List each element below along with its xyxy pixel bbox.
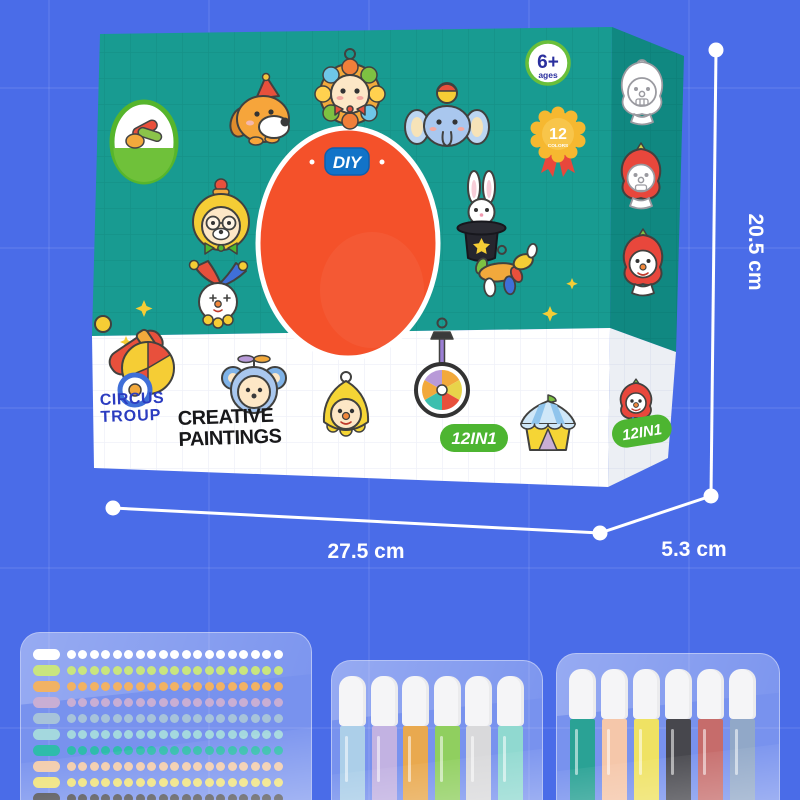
bead: [147, 666, 156, 675]
bead: [262, 778, 271, 787]
bead: [216, 762, 225, 771]
bead: [262, 730, 271, 739]
bead: [205, 666, 214, 675]
bead: [90, 682, 99, 691]
bead: [78, 778, 87, 787]
diy-dot-left: [310, 160, 315, 165]
bead: [147, 682, 156, 691]
bead: [193, 778, 202, 787]
pen-body: [698, 719, 723, 800]
paint-pen: [339, 676, 366, 800]
bead: [228, 730, 237, 739]
product-title: CREATIVE PAINTINGS: [177, 404, 282, 451]
bead: [205, 794, 214, 800]
bead: [251, 762, 260, 771]
dimension-endpoint: [106, 501, 121, 516]
bead: [170, 730, 179, 739]
pen-body: [570, 719, 595, 800]
bead-connector: [33, 697, 60, 708]
bead: [67, 698, 76, 707]
bead: [90, 778, 99, 787]
bead: [136, 666, 145, 675]
bead-strip-rows: [33, 649, 283, 800]
pen-body: [403, 726, 428, 800]
bead: [239, 682, 248, 691]
bead: [193, 698, 202, 707]
bead: [274, 746, 283, 755]
bead: [228, 650, 237, 659]
bead: [101, 746, 110, 755]
paint-pen: [729, 669, 756, 800]
bead: [113, 762, 122, 771]
paint-pen: [497, 676, 524, 800]
bead-connector: [33, 713, 60, 724]
bead: [262, 666, 271, 675]
bead: [262, 746, 271, 755]
pen-cap: [339, 676, 366, 726]
bead: [216, 650, 225, 659]
paint-pen: [371, 676, 398, 800]
bead: [182, 762, 191, 771]
bead: [147, 746, 156, 755]
bead-strip: [33, 713, 283, 724]
bead: [78, 746, 87, 755]
bead: [136, 746, 145, 755]
paint-pen: [601, 669, 628, 800]
bead: [90, 698, 99, 707]
bead: [193, 762, 202, 771]
pen-cap: [371, 676, 398, 726]
bead: [205, 762, 214, 771]
bead: [216, 682, 225, 691]
bead: [147, 714, 156, 723]
paint-pen: [402, 676, 429, 800]
bead: [67, 778, 76, 787]
bead-strip: [33, 697, 283, 708]
bead: [124, 778, 133, 787]
bead: [78, 698, 87, 707]
bead: [78, 730, 87, 739]
bead: [274, 698, 283, 707]
bead: [124, 794, 133, 800]
bead: [228, 714, 237, 723]
bead: [147, 650, 156, 659]
pen-cap: [569, 669, 596, 719]
width-dimension-label: 27.5 cm: [327, 540, 404, 563]
bead: [113, 794, 122, 800]
bead: [239, 762, 248, 771]
bead: [67, 650, 76, 659]
bead: [182, 730, 191, 739]
bead: [205, 698, 214, 707]
bead: [216, 730, 225, 739]
bead-strip: [33, 761, 283, 772]
bead: [159, 650, 168, 659]
bead: [170, 762, 179, 771]
bead: [78, 682, 87, 691]
bead: [251, 666, 260, 675]
bead: [216, 714, 225, 723]
bead-strip: [33, 729, 283, 740]
brand-line-2: TROUP: [100, 407, 162, 426]
bead: [159, 666, 168, 675]
bead: [170, 794, 179, 800]
bead: [193, 714, 202, 723]
bead: [101, 794, 110, 800]
bead: [67, 730, 76, 739]
bead: [101, 730, 110, 739]
bead: [170, 698, 179, 707]
bead: [78, 650, 87, 659]
bead: [182, 746, 191, 755]
bead: [216, 794, 225, 800]
pen-body: [372, 726, 397, 800]
bead: [251, 714, 260, 723]
set-count-label: 12IN1: [451, 429, 496, 448]
bead: [170, 650, 179, 659]
paint-pen: [434, 676, 461, 800]
bead: [113, 746, 122, 755]
bead: [228, 682, 237, 691]
bead: [228, 746, 237, 755]
bead: [251, 746, 260, 755]
bead: [170, 778, 179, 787]
bead: [136, 794, 145, 800]
bead: [159, 682, 168, 691]
width-depth-dimension-line: [113, 496, 711, 533]
bead: [67, 794, 76, 800]
bead: [228, 794, 237, 800]
bead: [228, 778, 237, 787]
bead: [274, 650, 283, 659]
bead: [182, 714, 191, 723]
bead: [274, 730, 283, 739]
bead: [205, 650, 214, 659]
bead: [251, 650, 260, 659]
age-badge: 6+ ages: [527, 42, 569, 84]
bead: [262, 650, 271, 659]
pen-body: [730, 719, 755, 800]
bead: [193, 746, 202, 755]
bead: [159, 794, 168, 800]
bead: [205, 682, 214, 691]
bead: [205, 714, 214, 723]
bead-strips-panel: [20, 632, 312, 800]
diy-badge: DIY: [325, 148, 369, 175]
bead: [239, 698, 248, 707]
bead: [101, 666, 110, 675]
bead: [274, 714, 283, 723]
bead: [147, 698, 156, 707]
paint-pen: [697, 669, 724, 800]
colors-badge-unit: COLORS: [548, 143, 569, 149]
bead-connector: [33, 665, 60, 676]
bead: [113, 682, 122, 691]
bead: [159, 762, 168, 771]
bead: [159, 746, 168, 755]
bead: [147, 778, 156, 787]
paint-pen: [465, 676, 492, 800]
bead: [113, 778, 122, 787]
bead: [136, 698, 145, 707]
bead: [228, 698, 237, 707]
bead: [239, 730, 248, 739]
bead: [113, 698, 122, 707]
bead-connector: [33, 745, 60, 756]
bead-strip: [33, 681, 283, 692]
title-line-2: PAINTINGS: [178, 425, 282, 451]
bead: [101, 682, 110, 691]
bead: [274, 794, 283, 800]
dimension-endpoint: [593, 526, 608, 541]
height-dimension-label: 20.5 cm: [744, 213, 767, 290]
bead: [113, 650, 122, 659]
bead: [67, 714, 76, 723]
bead: [262, 762, 271, 771]
bead: [193, 730, 202, 739]
bead: [228, 762, 237, 771]
bead: [262, 682, 271, 691]
bead-connector: [33, 761, 60, 772]
bead: [136, 682, 145, 691]
bead: [136, 650, 145, 659]
bead: [101, 698, 110, 707]
bead: [251, 698, 260, 707]
bead: [182, 778, 191, 787]
bead: [90, 794, 99, 800]
bead: [239, 650, 248, 659]
pen-body: [340, 726, 365, 800]
bead: [216, 666, 225, 675]
pen-cap: [434, 676, 461, 726]
bead: [274, 778, 283, 787]
bead: [136, 762, 145, 771]
bead: [182, 698, 191, 707]
bead: [124, 746, 133, 755]
bead: [124, 666, 133, 675]
bead: [205, 730, 214, 739]
pen-cap: [465, 676, 492, 726]
bead-strip: [33, 665, 283, 676]
bead: [274, 682, 283, 691]
bead: [113, 714, 122, 723]
colors-badge-value: 12: [549, 126, 567, 143]
age-badge-unit: ages: [538, 70, 558, 80]
bead: [90, 666, 99, 675]
pen-cap: [633, 669, 660, 719]
bead: [78, 714, 87, 723]
bead-strip: [33, 649, 283, 660]
bead: [159, 698, 168, 707]
bead: [159, 730, 168, 739]
bead: [101, 762, 110, 771]
pen-cap: [601, 669, 628, 719]
paint-pen: [569, 669, 596, 800]
bead: [90, 762, 99, 771]
bead: [78, 794, 87, 800]
bead: [101, 650, 110, 659]
depth-dimension-label: 5.3 cm: [661, 538, 726, 561]
bead: [216, 698, 225, 707]
bead: [147, 730, 156, 739]
bead: [170, 746, 179, 755]
height-dimension-line: [711, 50, 716, 496]
bead: [113, 666, 122, 675]
paint-pen: [633, 669, 660, 800]
oval-sheen: [320, 232, 424, 348]
bead-connector: [33, 681, 60, 692]
bead-strip: [33, 777, 283, 788]
pen-cap: [729, 669, 756, 719]
pen-cap: [402, 676, 429, 726]
brand-name: CIRCUS TROUP: [100, 390, 165, 426]
bead-connector: [33, 793, 60, 800]
bead: [159, 714, 168, 723]
bead: [90, 746, 99, 755]
bead: [193, 666, 202, 675]
bead: [124, 698, 133, 707]
dimension-endpoint: [709, 43, 724, 58]
bead: [193, 682, 202, 691]
diy-dot-right: [380, 160, 385, 165]
bead: [78, 762, 87, 771]
bead: [262, 714, 271, 723]
bead: [101, 714, 110, 723]
bead: [239, 778, 248, 787]
bead: [205, 746, 214, 755]
bead: [170, 714, 179, 723]
bead: [147, 762, 156, 771]
bead: [182, 794, 191, 800]
pen-body: [498, 726, 523, 800]
pen-body: [435, 726, 460, 800]
bead-strip: [33, 793, 283, 800]
bead: [193, 650, 202, 659]
bead: [124, 650, 133, 659]
bead: [67, 666, 76, 675]
bead: [251, 682, 260, 691]
bead: [67, 762, 76, 771]
bead-connector: [33, 649, 60, 660]
bead: [124, 762, 133, 771]
bead: [239, 714, 248, 723]
bead: [262, 698, 271, 707]
bead: [101, 778, 110, 787]
bead: [90, 650, 99, 659]
bead: [205, 778, 214, 787]
bead: [239, 666, 248, 675]
brand-logo: [112, 102, 176, 182]
bead: [147, 794, 156, 800]
dimension-endpoint: [704, 489, 719, 504]
bead: [182, 650, 191, 659]
bead: [90, 714, 99, 723]
bead: [124, 714, 133, 723]
diy-label: DIY: [333, 153, 363, 172]
bead: [113, 730, 122, 739]
pen-body: [634, 719, 659, 800]
bead: [170, 666, 179, 675]
bead: [170, 682, 179, 691]
bead-connector: [33, 729, 60, 740]
bead: [124, 682, 133, 691]
bead: [67, 682, 76, 691]
bead-connector: [33, 777, 60, 788]
bead: [274, 762, 283, 771]
bead: [239, 746, 248, 755]
bead: [90, 730, 99, 739]
bead: [182, 682, 191, 691]
bead: [216, 746, 225, 755]
bead: [216, 778, 225, 787]
bead: [67, 746, 76, 755]
pen-body: [666, 719, 691, 800]
bead-strip: [33, 745, 283, 756]
pen-body: [602, 719, 627, 800]
bead: [136, 730, 145, 739]
pen-cap: [497, 676, 524, 726]
bead: [159, 778, 168, 787]
bead: [239, 794, 248, 800]
bead: [124, 730, 133, 739]
bead: [228, 666, 237, 675]
bead: [262, 794, 271, 800]
bead: [274, 666, 283, 675]
pen-body: [466, 726, 491, 800]
bead: [251, 730, 260, 739]
set-count-badge-front: 12IN1: [440, 424, 508, 452]
pen-cap: [665, 669, 692, 719]
bead: [193, 794, 202, 800]
bead: [136, 778, 145, 787]
marker-pens-panel-left: [331, 660, 543, 800]
bead: [251, 778, 260, 787]
product-showcase: DIY: [0, 0, 800, 800]
marker-pens-panel-right: [556, 653, 780, 800]
pen-cap: [697, 669, 724, 719]
bead: [136, 714, 145, 723]
bead: [78, 666, 87, 675]
bead: [182, 666, 191, 675]
paint-pen: [665, 669, 692, 800]
bead: [251, 794, 260, 800]
